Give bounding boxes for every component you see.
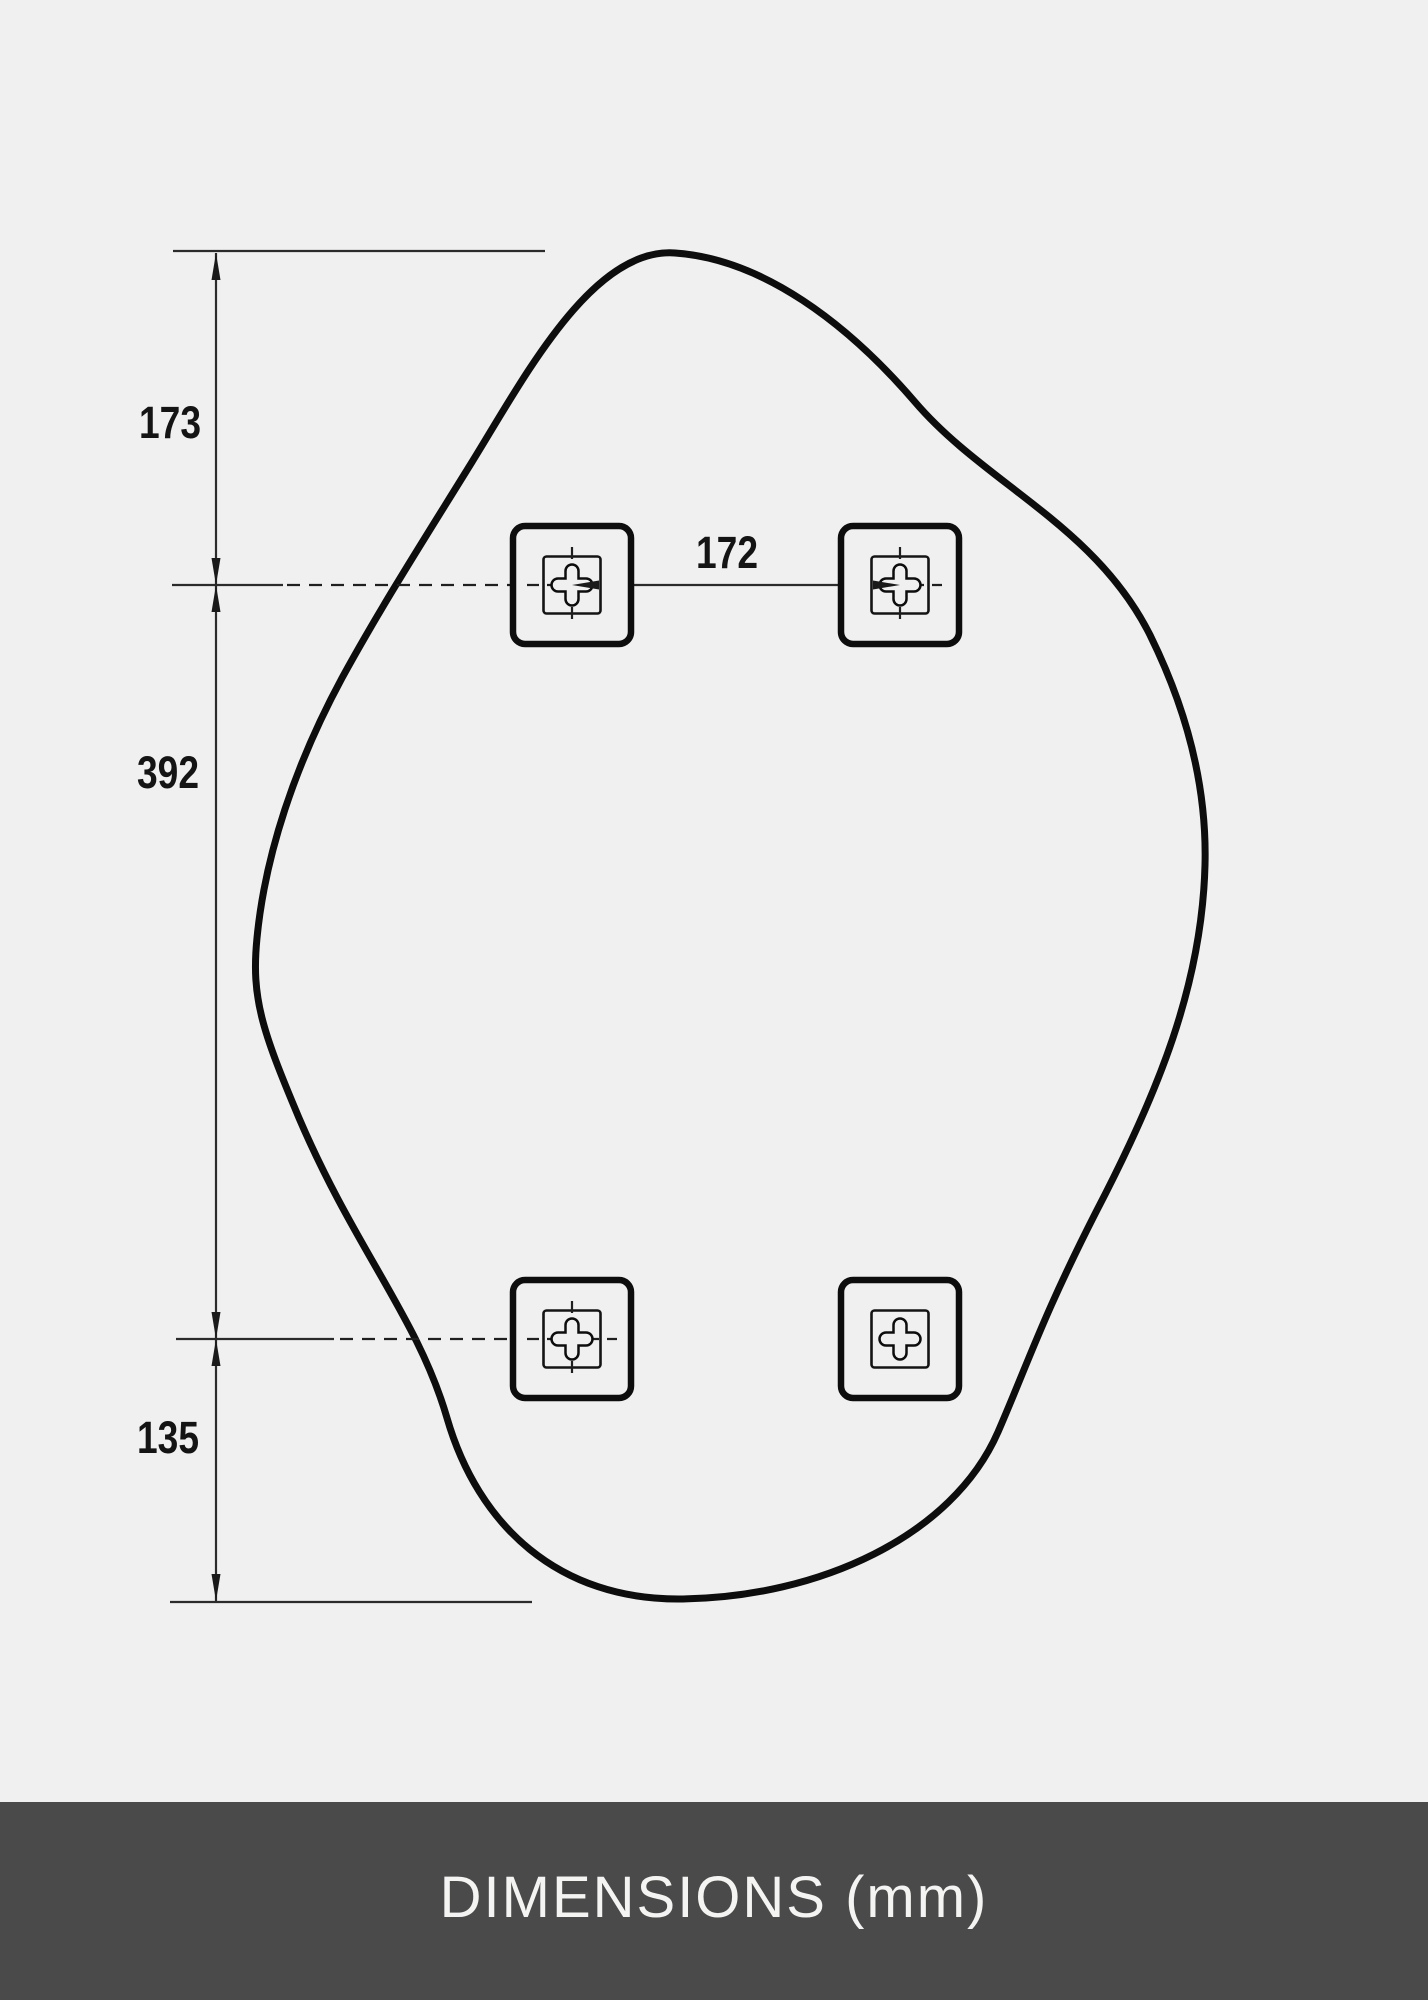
arrow-up-icon <box>212 585 221 612</box>
footer-label: DIMENSIONS (mm) <box>440 1864 989 1931</box>
footer-bar: DIMENSIONS (mm) <box>0 1802 1428 2000</box>
bracket-bottom-right <box>841 1280 959 1398</box>
mirror-outline <box>255 253 1205 1599</box>
dimension-label-middle: 392 <box>137 747 199 798</box>
arrow-down-icon <box>212 1312 221 1339</box>
arrow-up-icon <box>212 253 221 280</box>
bracket-bottom-left <box>513 1280 631 1398</box>
arrow-up-icon <box>212 1339 221 1366</box>
dimension-diagram: 173 392 135 172 <box>0 0 1428 2000</box>
dimension-diagram-page: 173 392 135 172 DIMENSIONS (mm) <box>0 0 1428 2000</box>
dimension-label-bottom: 135 <box>137 1412 199 1463</box>
dimension-label-top: 173 <box>139 397 201 448</box>
arrow-down-icon <box>212 1574 221 1601</box>
arrow-down-icon <box>212 558 221 585</box>
dimension-label-hole-spacing: 172 <box>696 527 758 578</box>
